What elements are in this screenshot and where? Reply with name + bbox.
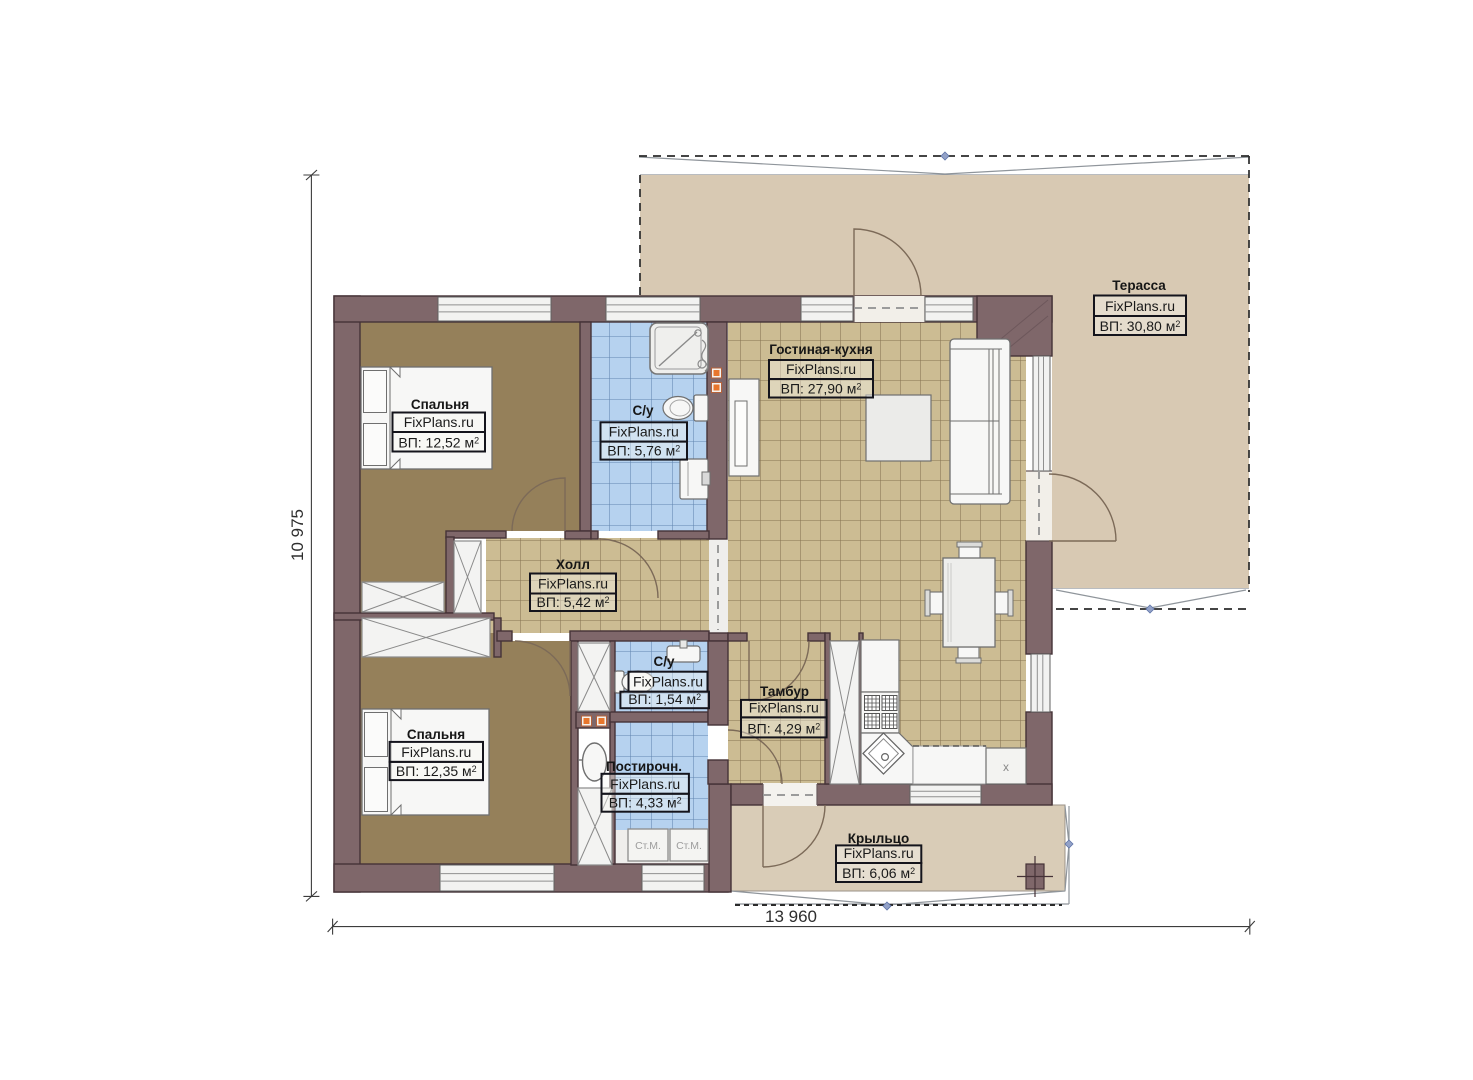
svg-text:Тамбур: Тамбур	[760, 684, 809, 699]
svg-text:ВП: 12,35 м2: ВП: 12,35 м2	[396, 763, 477, 779]
svg-text:Постирочн.: Постирочн.	[606, 759, 682, 774]
svg-text:Спальня: Спальня	[407, 727, 465, 742]
svg-text:ВП: 4,33 м2: ВП: 4,33 м2	[609, 795, 682, 811]
svg-text:ВП: 1,54 м2: ВП: 1,54 м2	[628, 691, 701, 707]
svg-text:Ст.М.: Ст.М.	[635, 840, 661, 852]
svg-text:FixPlans.ru: FixPlans.ru	[633, 674, 703, 690]
svg-text:FixPlans.ru: FixPlans.ru	[538, 576, 608, 592]
svg-text:Ст.М.: Ст.М.	[676, 840, 702, 852]
svg-text:FixPlans.ru: FixPlans.ru	[749, 699, 819, 715]
svg-text:ВП: 5,76 м2: ВП: 5,76 м2	[607, 443, 680, 459]
svg-text:ВП: 5,42 м2: ВП: 5,42 м2	[537, 594, 610, 610]
svg-text:FixPlans.ru: FixPlans.ru	[610, 776, 680, 792]
svg-text:Спальня: Спальня	[411, 397, 469, 412]
svg-text:Терасса: Терасса	[1112, 278, 1166, 293]
svg-text:FixPlans.ru: FixPlans.ru	[1105, 298, 1175, 314]
svg-text:Крыльцо: Крыльцо	[848, 831, 909, 846]
svg-text:FixPlans.ru: FixPlans.ru	[609, 424, 679, 440]
svg-text:FixPlans.ru: FixPlans.ru	[401, 744, 471, 760]
svg-text:FixPlans.ru: FixPlans.ru	[404, 414, 474, 430]
svg-text:ВП: 6,06 м2: ВП: 6,06 м2	[842, 865, 915, 881]
svg-text:13 960: 13 960	[765, 907, 817, 926]
svg-text:Холл: Холл	[556, 557, 590, 572]
svg-text:x: x	[1003, 760, 1009, 774]
svg-text:10 975: 10 975	[288, 509, 307, 561]
svg-text:ВП: 12,52 м2: ВП: 12,52 м2	[398, 435, 479, 451]
svg-text:С/у: С/у	[632, 403, 654, 418]
svg-text:FixPlans.ru: FixPlans.ru	[786, 361, 856, 377]
svg-text:Гостиная-кухня: Гостиная-кухня	[769, 342, 872, 357]
svg-text:С/у: С/у	[653, 654, 675, 669]
svg-text:ВП: 27,90 м2: ВП: 27,90 м2	[781, 381, 862, 397]
svg-text:ВП: 4,29 м2: ВП: 4,29 м2	[747, 720, 820, 736]
svg-text:FixPlans.ru: FixPlans.ru	[844, 845, 914, 861]
svg-text:ВП: 30,80 м2: ВП: 30,80 м2	[1100, 318, 1181, 334]
